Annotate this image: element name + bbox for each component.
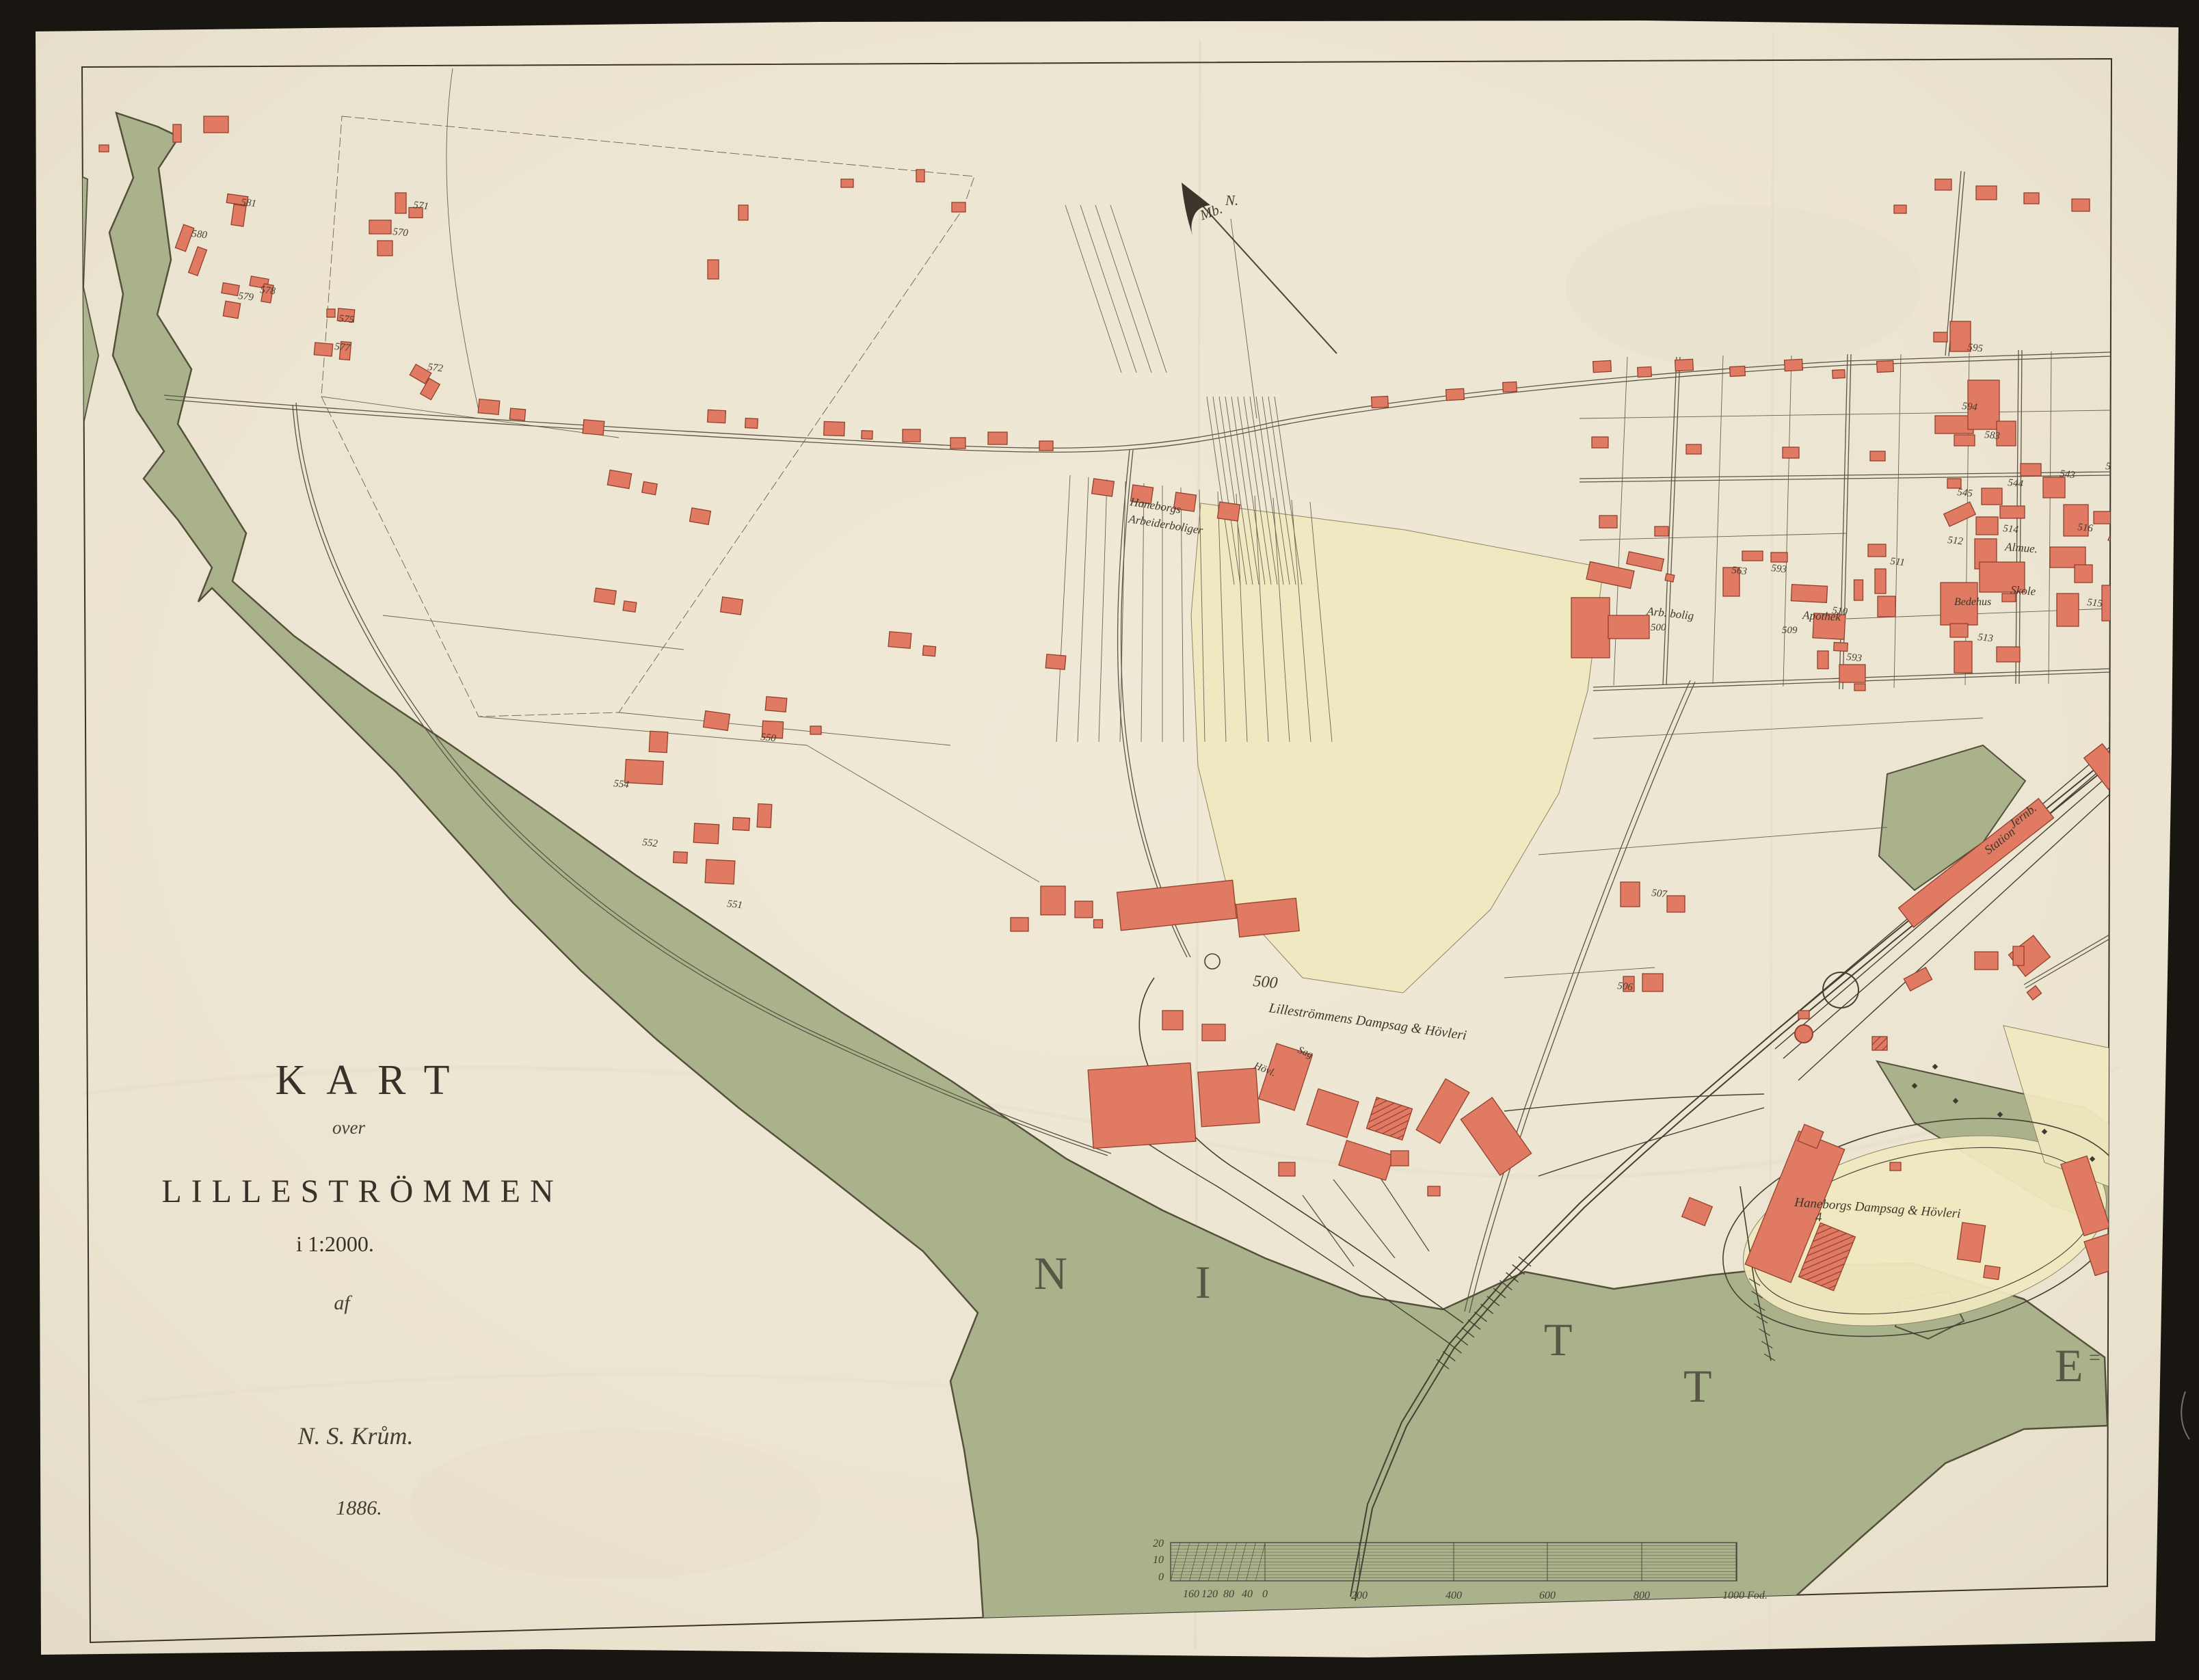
parcel-number: 580 xyxy=(191,228,209,241)
water-tower xyxy=(1795,1025,1813,1043)
building xyxy=(1975,952,1998,970)
parcel-number: 551 xyxy=(727,898,743,911)
building xyxy=(1870,451,1885,461)
building xyxy=(738,205,748,220)
building xyxy=(1391,1151,1409,1166)
compass-label-n: N. xyxy=(1225,192,1238,209)
building xyxy=(1783,447,1799,458)
map-title-scale: i 1:2000. xyxy=(296,1231,374,1256)
building xyxy=(810,726,821,734)
parcel-number: 516 xyxy=(2077,522,2094,534)
building xyxy=(642,481,657,494)
building xyxy=(1198,1068,1260,1127)
building xyxy=(1833,370,1845,379)
building xyxy=(395,193,406,213)
parcel-number: 4 xyxy=(1815,1210,1822,1225)
river-name-letter: T xyxy=(1683,1360,1712,1412)
building xyxy=(1730,366,1746,376)
river-name-letter: = xyxy=(2089,1346,2101,1369)
building xyxy=(841,179,853,187)
parcel-number: 579 xyxy=(238,291,255,303)
parcel-number: 544 xyxy=(2008,477,2025,490)
building xyxy=(824,421,845,436)
building xyxy=(1236,898,1300,937)
parcel-number: 512 xyxy=(1947,535,1964,547)
building xyxy=(2075,565,2092,583)
parcel-number: 595 xyxy=(1967,342,1984,354)
building xyxy=(1771,552,1787,562)
parcel-number: 570 xyxy=(392,226,410,239)
building xyxy=(1798,1011,1809,1019)
building xyxy=(625,760,664,785)
river-name-letter: T xyxy=(1544,1314,1573,1365)
building xyxy=(1011,918,1028,931)
building xyxy=(1894,205,1906,213)
parcel-number: 550 xyxy=(760,732,777,744)
parcel-number: 514 xyxy=(2003,523,2020,535)
parcel-number: 572 xyxy=(427,362,444,374)
parcel-number: 571 xyxy=(413,200,429,212)
building xyxy=(204,116,228,133)
building xyxy=(745,418,758,429)
building xyxy=(1834,642,1848,651)
scale-bar-tick-label: 120 xyxy=(1201,1588,1218,1600)
building xyxy=(1785,359,1803,371)
building xyxy=(99,145,109,152)
building xyxy=(1279,1162,1295,1176)
building xyxy=(1592,437,1608,448)
building xyxy=(2072,199,2090,211)
building xyxy=(1217,502,1240,521)
building xyxy=(1202,1024,1225,1041)
building xyxy=(1877,360,1894,372)
building xyxy=(1686,444,1701,454)
building xyxy=(594,588,616,604)
scale-bar-tick-label: 800 xyxy=(1634,1590,1650,1601)
building xyxy=(1571,598,1610,658)
parcel-number: 545 xyxy=(1957,487,1974,499)
scale-bar-tick-label: 1000 Fod. xyxy=(1722,1590,1768,1601)
building xyxy=(2000,506,2025,518)
building xyxy=(1642,974,1663,991)
river-name-letter: E xyxy=(2055,1339,2083,1391)
parcel-number: 509 xyxy=(1782,625,1798,636)
building xyxy=(1446,388,1465,400)
parcel-number: 513 xyxy=(1977,632,1994,644)
parcel-number: 581 xyxy=(241,197,257,209)
building xyxy=(1934,332,1947,342)
building xyxy=(1817,651,1828,669)
building xyxy=(369,220,391,234)
building xyxy=(952,202,965,212)
parcel-number: 500 xyxy=(1252,972,1278,992)
scale-bar-side-label: 20 xyxy=(1153,1538,1164,1549)
building xyxy=(223,301,240,318)
building xyxy=(649,731,668,752)
river-name-letter: N xyxy=(1034,1247,1067,1299)
building xyxy=(1839,665,1865,682)
building xyxy=(2043,477,2065,498)
building xyxy=(693,823,719,844)
parcel-number: 554 xyxy=(613,778,630,790)
parcel-number: 578 xyxy=(260,284,277,297)
parcel-number: 511 xyxy=(1890,556,1906,568)
building xyxy=(1976,517,1998,535)
scale-bar-tick-label: 0 xyxy=(1262,1588,1268,1600)
building xyxy=(708,260,719,279)
building xyxy=(1667,896,1685,912)
building xyxy=(1950,624,1968,637)
building xyxy=(1094,920,1103,928)
building xyxy=(704,711,730,731)
parcel-number: 507 xyxy=(1651,888,1669,900)
building xyxy=(888,632,911,649)
building xyxy=(916,170,924,182)
parcel-number: 500 xyxy=(1651,622,1666,633)
building xyxy=(2013,946,2024,965)
parcel-number: 594 xyxy=(1962,401,1979,413)
building xyxy=(1621,882,1640,907)
building xyxy=(1954,435,1975,446)
building xyxy=(327,309,335,317)
building xyxy=(583,420,604,436)
building xyxy=(988,432,1007,444)
map-title-over: over xyxy=(332,1117,365,1138)
parcel-number: 510 xyxy=(1832,605,1849,617)
building xyxy=(1045,654,1066,669)
building xyxy=(1041,886,1065,915)
building xyxy=(1608,615,1649,639)
parcel-number: 543 xyxy=(2060,468,2076,481)
building xyxy=(862,431,872,440)
scale-bar-tick-label: 40 xyxy=(1242,1588,1253,1600)
building xyxy=(1854,580,1863,600)
place-label: Bedehus xyxy=(1954,596,1991,608)
scale-bar-tick-label: 160 xyxy=(1183,1588,1199,1600)
parcel-number: 593 xyxy=(1846,652,1863,664)
building xyxy=(1655,526,1668,536)
river-name-letter: I xyxy=(1195,1256,1211,1308)
place-label: Skole xyxy=(2010,583,2037,598)
building xyxy=(314,343,332,356)
building xyxy=(509,408,525,421)
building xyxy=(1162,1011,1183,1030)
building xyxy=(1982,488,2002,505)
building xyxy=(1875,569,1886,594)
building xyxy=(2024,193,2039,204)
building xyxy=(1935,179,1951,190)
parcel-number: 593 xyxy=(1771,563,1787,575)
building xyxy=(1503,382,1517,392)
building xyxy=(1665,574,1675,582)
parcel-number: 506 xyxy=(1617,981,1634,993)
parcel-number: 563 xyxy=(1731,565,1748,577)
parcel-number: 577 xyxy=(334,341,352,354)
building xyxy=(222,283,239,296)
parcel-number: 583 xyxy=(1984,429,2001,442)
building xyxy=(1039,441,1053,451)
building xyxy=(1872,1037,1887,1050)
map-title-author: N. S. Krům. xyxy=(297,1422,413,1450)
parcel-number: 575 xyxy=(338,313,356,325)
building xyxy=(1599,516,1617,528)
building xyxy=(733,817,750,830)
building xyxy=(607,470,631,488)
building xyxy=(1997,647,2020,662)
building xyxy=(1675,359,1694,371)
map-title-place: LILLESTRÖMMEN xyxy=(161,1173,563,1210)
scale-bar-side-label: 0 xyxy=(1158,1571,1164,1583)
photographed-map-sheet: HaneborgsArbeiderboligerLilleströmmens D… xyxy=(0,0,2199,1680)
building xyxy=(1092,479,1115,496)
building xyxy=(1742,551,1763,561)
parcel-number: 552 xyxy=(642,837,659,849)
building xyxy=(1075,901,1093,918)
scale-bar-tick-label: 80 xyxy=(1223,1588,1234,1600)
building xyxy=(1638,366,1652,377)
building xyxy=(689,508,710,525)
building xyxy=(1957,1223,1985,1262)
building xyxy=(1878,596,1895,617)
building xyxy=(1976,186,1997,200)
map-title-af: af xyxy=(334,1292,352,1314)
building xyxy=(1854,684,1865,691)
scale-bar-side-label: 10 xyxy=(1153,1554,1164,1566)
building xyxy=(950,438,965,449)
map-title-year: 1886. xyxy=(336,1497,382,1519)
building xyxy=(1428,1186,1440,1196)
building xyxy=(757,803,772,827)
building xyxy=(674,851,688,863)
building xyxy=(173,124,181,142)
building xyxy=(1984,1266,2000,1280)
map-canvas: HaneborgsArbeiderboligerLilleströmmens D… xyxy=(0,0,2199,1680)
building xyxy=(922,645,935,656)
scale-bar-tick-label: 400 xyxy=(1445,1590,1462,1601)
building xyxy=(1868,544,1886,557)
building xyxy=(1890,1162,1901,1171)
place-label: Almue. xyxy=(2004,540,2038,555)
building xyxy=(478,399,500,415)
parcel-number: 515 xyxy=(2087,597,2104,609)
map-title-word: KART xyxy=(275,1057,470,1104)
building xyxy=(1372,396,1389,408)
building xyxy=(2057,594,2079,626)
building xyxy=(903,429,920,442)
building xyxy=(377,241,392,256)
scale-bar-tick-label: 600 xyxy=(1539,1590,1556,1601)
building xyxy=(721,597,743,615)
building xyxy=(765,697,787,712)
building xyxy=(1791,585,1827,603)
building xyxy=(2021,464,2041,476)
building xyxy=(705,859,735,884)
building xyxy=(1088,1063,1196,1148)
building xyxy=(1954,641,1972,673)
scale-bar-tick-label: 200 xyxy=(1351,1590,1368,1601)
building xyxy=(623,601,637,612)
building xyxy=(1593,360,1612,372)
building xyxy=(708,410,726,423)
